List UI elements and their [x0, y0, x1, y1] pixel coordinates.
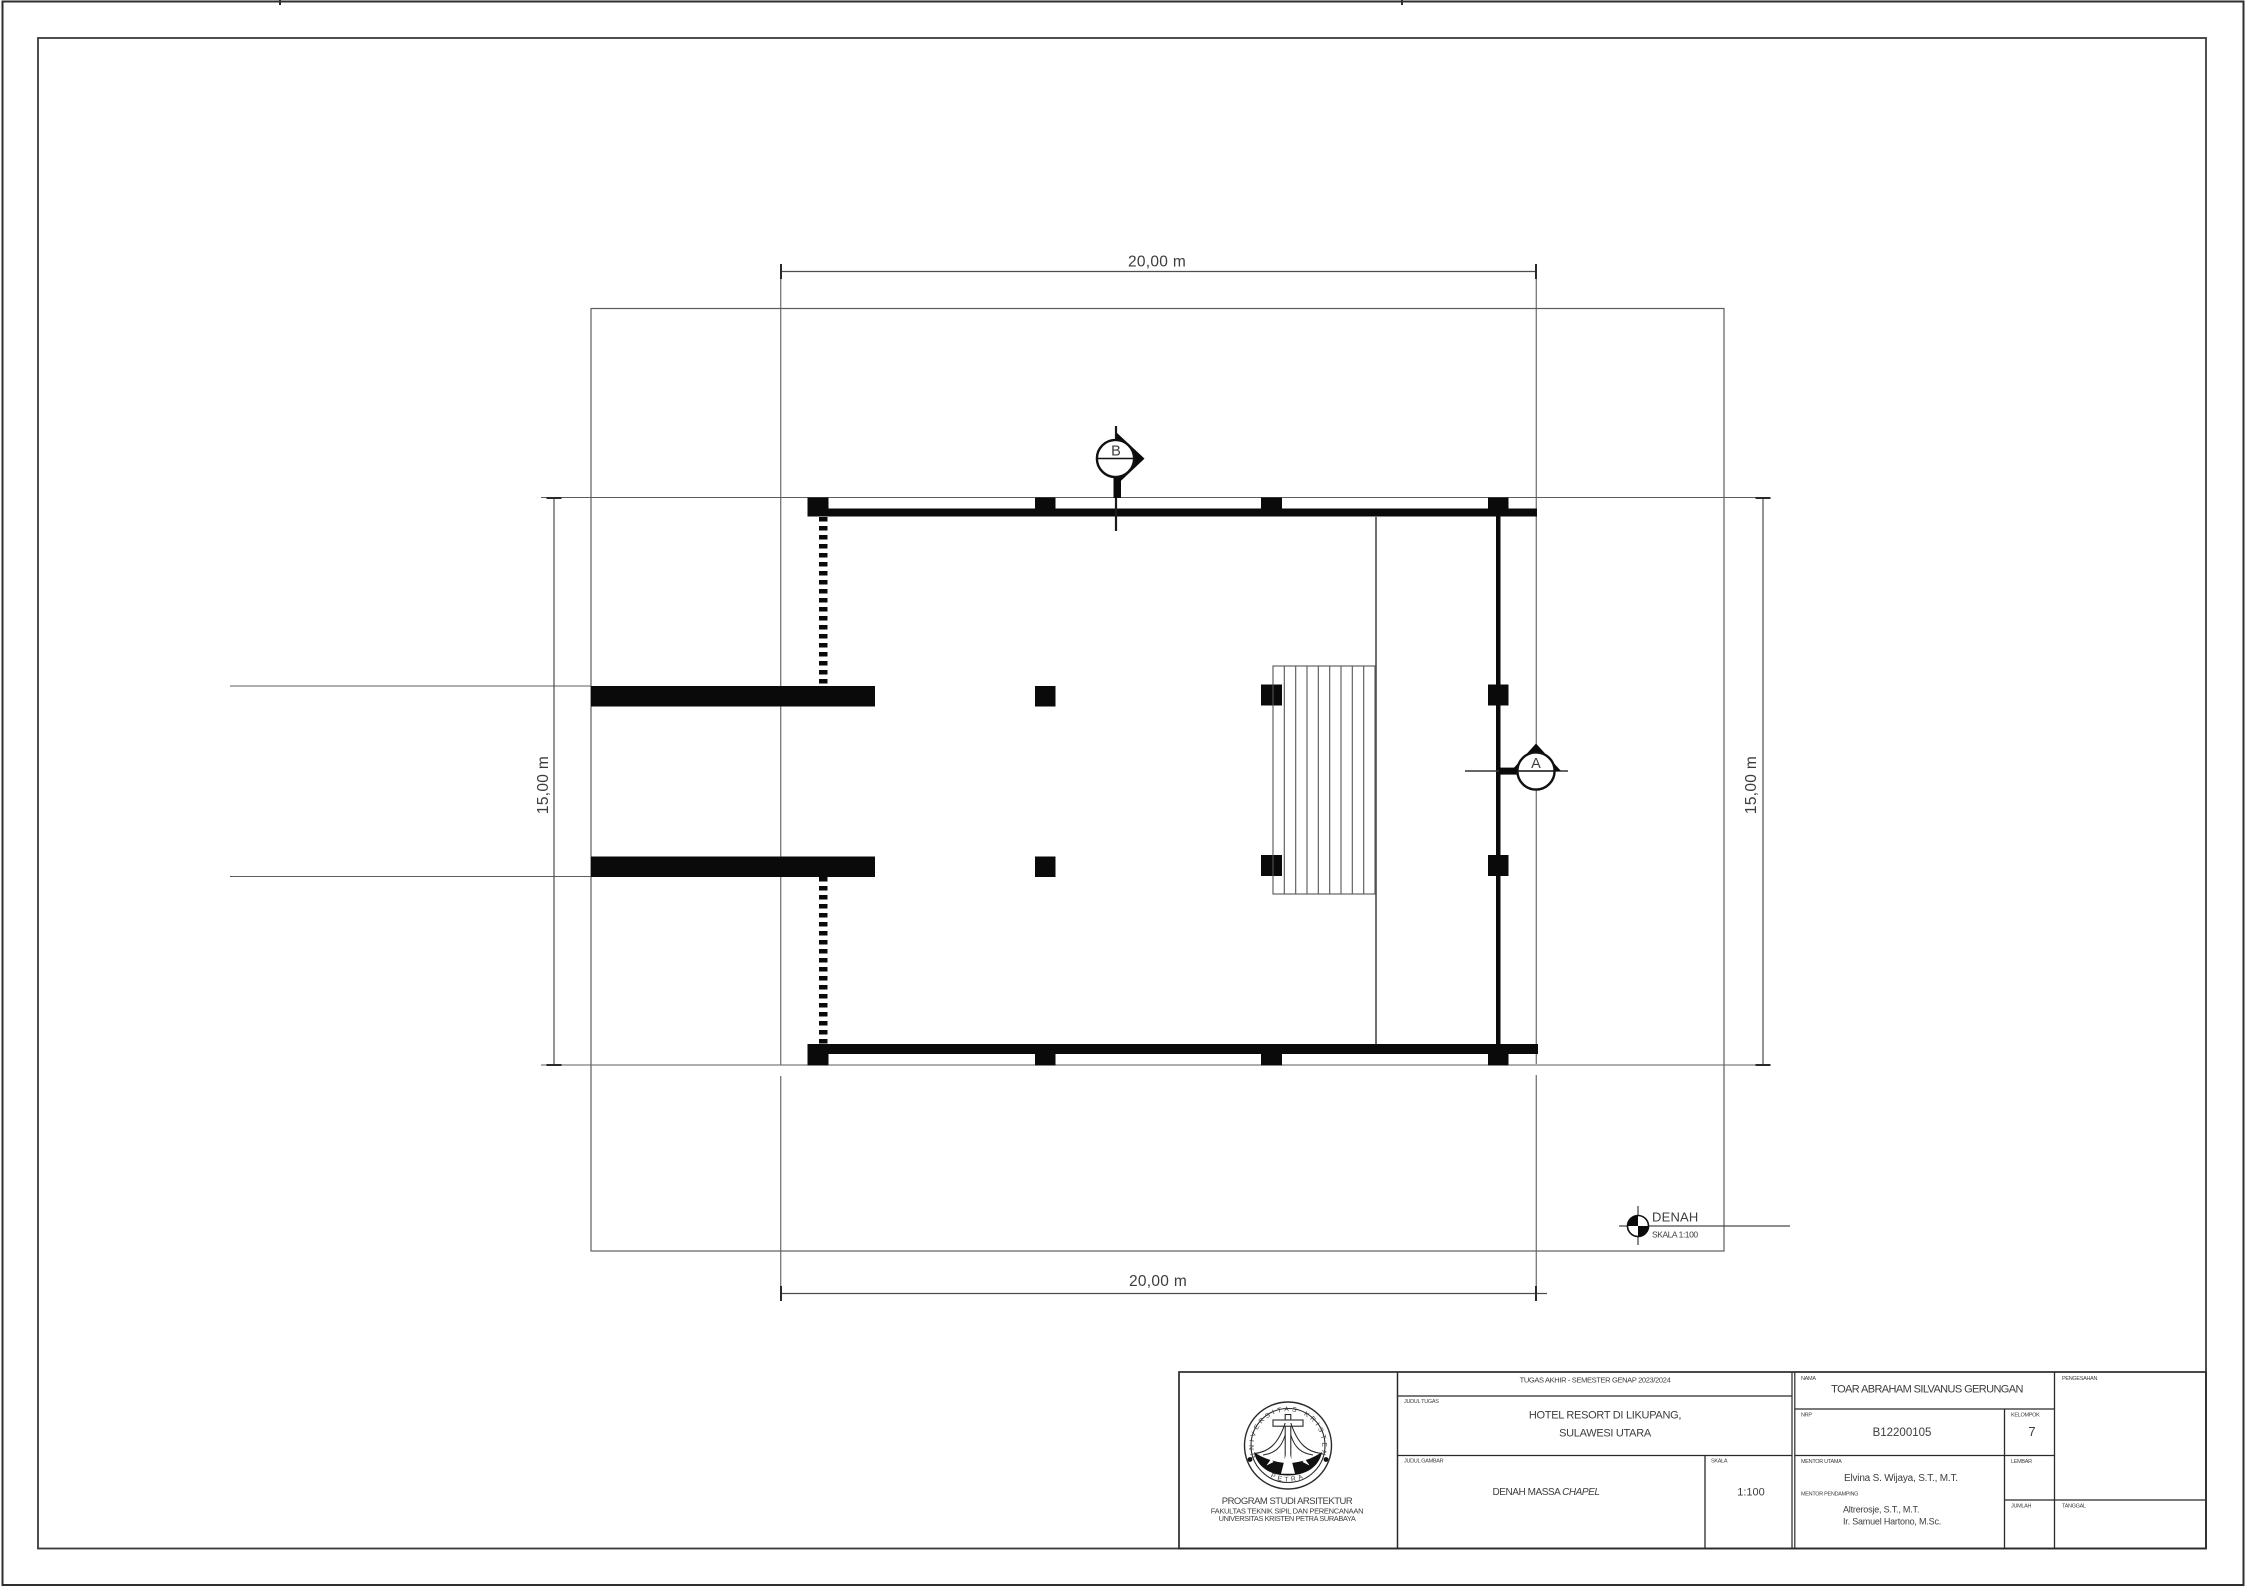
svg-text:SKALA: SKALA — [1711, 1459, 1728, 1465]
svg-text:NAMA: NAMA — [1801, 1376, 1816, 1382]
svg-text:Elvina S. Wijaya, S.T., M.T.: Elvina S. Wijaya, S.T., M.T. — [1844, 1473, 1958, 1484]
svg-text:20,00 m: 20,00 m — [1129, 1273, 1187, 1290]
svg-text:15,00 m: 15,00 m — [1743, 756, 1760, 814]
svg-text:1:100: 1:100 — [1737, 1487, 1765, 1499]
svg-text:B: B — [1111, 444, 1121, 460]
svg-text:SULAWESI UTARA: SULAWESI UTARA — [1559, 1428, 1652, 1440]
svg-text:TANGGAL: TANGGAL — [2062, 1504, 2086, 1510]
svg-text:15,00 m: 15,00 m — [535, 756, 552, 814]
svg-text:A: A — [1531, 756, 1541, 772]
svg-text:Ir. Samuel Hartono, M.Sc.: Ir. Samuel Hartono, M.Sc. — [1843, 1517, 1941, 1527]
svg-text:Altrerosje, S.T., M.T.: Altrerosje, S.T., M.T. — [1843, 1505, 1919, 1515]
svg-text:JUDUL TUGAS: JUDUL TUGAS — [1404, 1399, 1439, 1405]
svg-text:JUMLAH: JUMLAH — [2011, 1504, 2032, 1510]
svg-text:LEMBAR: LEMBAR — [2011, 1459, 2032, 1465]
svg-text:HOTEL RESORT DI LIKUPANG,: HOTEL RESORT DI LIKUPANG, — [1529, 1410, 1681, 1422]
svg-text:DENAH: DENAH — [1652, 1210, 1699, 1225]
svg-text:PENGESAHAN: PENGESAHAN — [2062, 1376, 2098, 1382]
svg-text:DENAH MASSA CHAPEL: DENAH MASSA CHAPEL — [1493, 1487, 1600, 1498]
svg-text:TOAR ABRAHAM SILVANUS GERUNGAN: TOAR ABRAHAM SILVANUS GERUNGAN — [1831, 1384, 2023, 1396]
svg-text:PROGRAM STUDI ARSITEKTUR: PROGRAM STUDI ARSITEKTUR — [1222, 1496, 1353, 1507]
svg-text:MENTOR PENDAMPING: MENTOR PENDAMPING — [1801, 1492, 1858, 1498]
svg-text:JUDUL GAMBAR: JUDUL GAMBAR — [1404, 1459, 1444, 1465]
svg-text:MENTOR UTAMA: MENTOR UTAMA — [1801, 1459, 1842, 1465]
svg-text:B12200105: B12200105 — [1873, 1427, 1932, 1439]
svg-text:KELOMPOK: KELOMPOK — [2011, 1413, 2040, 1419]
svg-text:UNIVERSITAS KRISTEN PETRA SURA: UNIVERSITAS KRISTEN PETRA SURABAYA — [1219, 1514, 1356, 1523]
svg-text:7: 7 — [2028, 1424, 2035, 1439]
svg-text:NRP: NRP — [1801, 1413, 1812, 1419]
svg-text:SKALA 1:100: SKALA 1:100 — [1652, 1230, 1698, 1240]
svg-text:TUGAS AKHIR - SEMESTER GENAP 2: TUGAS AKHIR - SEMESTER GENAP 2023/2024 — [1520, 1376, 1671, 1385]
svg-text:20,00 m: 20,00 m — [1128, 254, 1186, 271]
